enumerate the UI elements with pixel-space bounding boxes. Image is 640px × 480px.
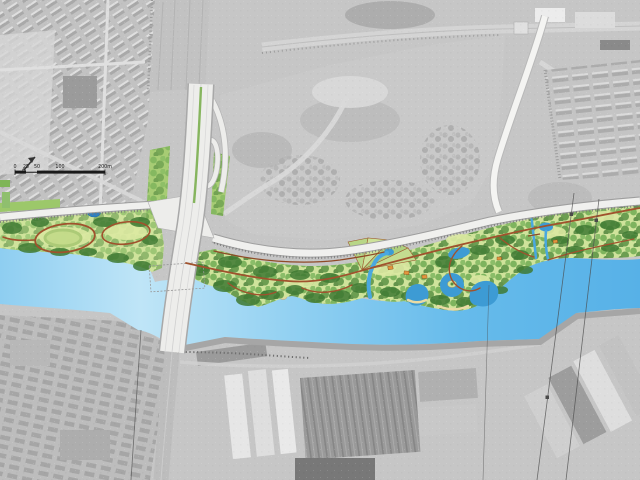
site-plan-map: 0 25 50 100 200m xyxy=(0,0,640,480)
pavilion xyxy=(388,266,394,270)
lawn-mound xyxy=(45,230,81,246)
pylon xyxy=(546,396,549,399)
scale-label: 0 xyxy=(13,164,16,170)
pond-island-tree xyxy=(451,283,454,286)
pavilion xyxy=(404,271,409,275)
scale-segment xyxy=(37,171,60,174)
green-patch xyxy=(0,180,10,187)
pavilion xyxy=(497,257,502,260)
scale-segment xyxy=(60,171,105,174)
green-patch xyxy=(2,192,10,208)
scale-label: 25 xyxy=(23,164,29,170)
pavilion xyxy=(553,240,558,244)
master-plan-canvas: 0 25 50 100 200m xyxy=(0,0,640,480)
scale-label: 50 xyxy=(34,164,40,170)
pylon xyxy=(595,219,598,222)
pylon xyxy=(570,213,573,216)
scale-segment xyxy=(15,171,26,174)
scale-label: 200m xyxy=(98,164,112,170)
pavilion xyxy=(422,275,427,279)
scale-label: 100 xyxy=(55,164,64,170)
scale-labels: 0 25 50 100 200m xyxy=(13,164,112,170)
